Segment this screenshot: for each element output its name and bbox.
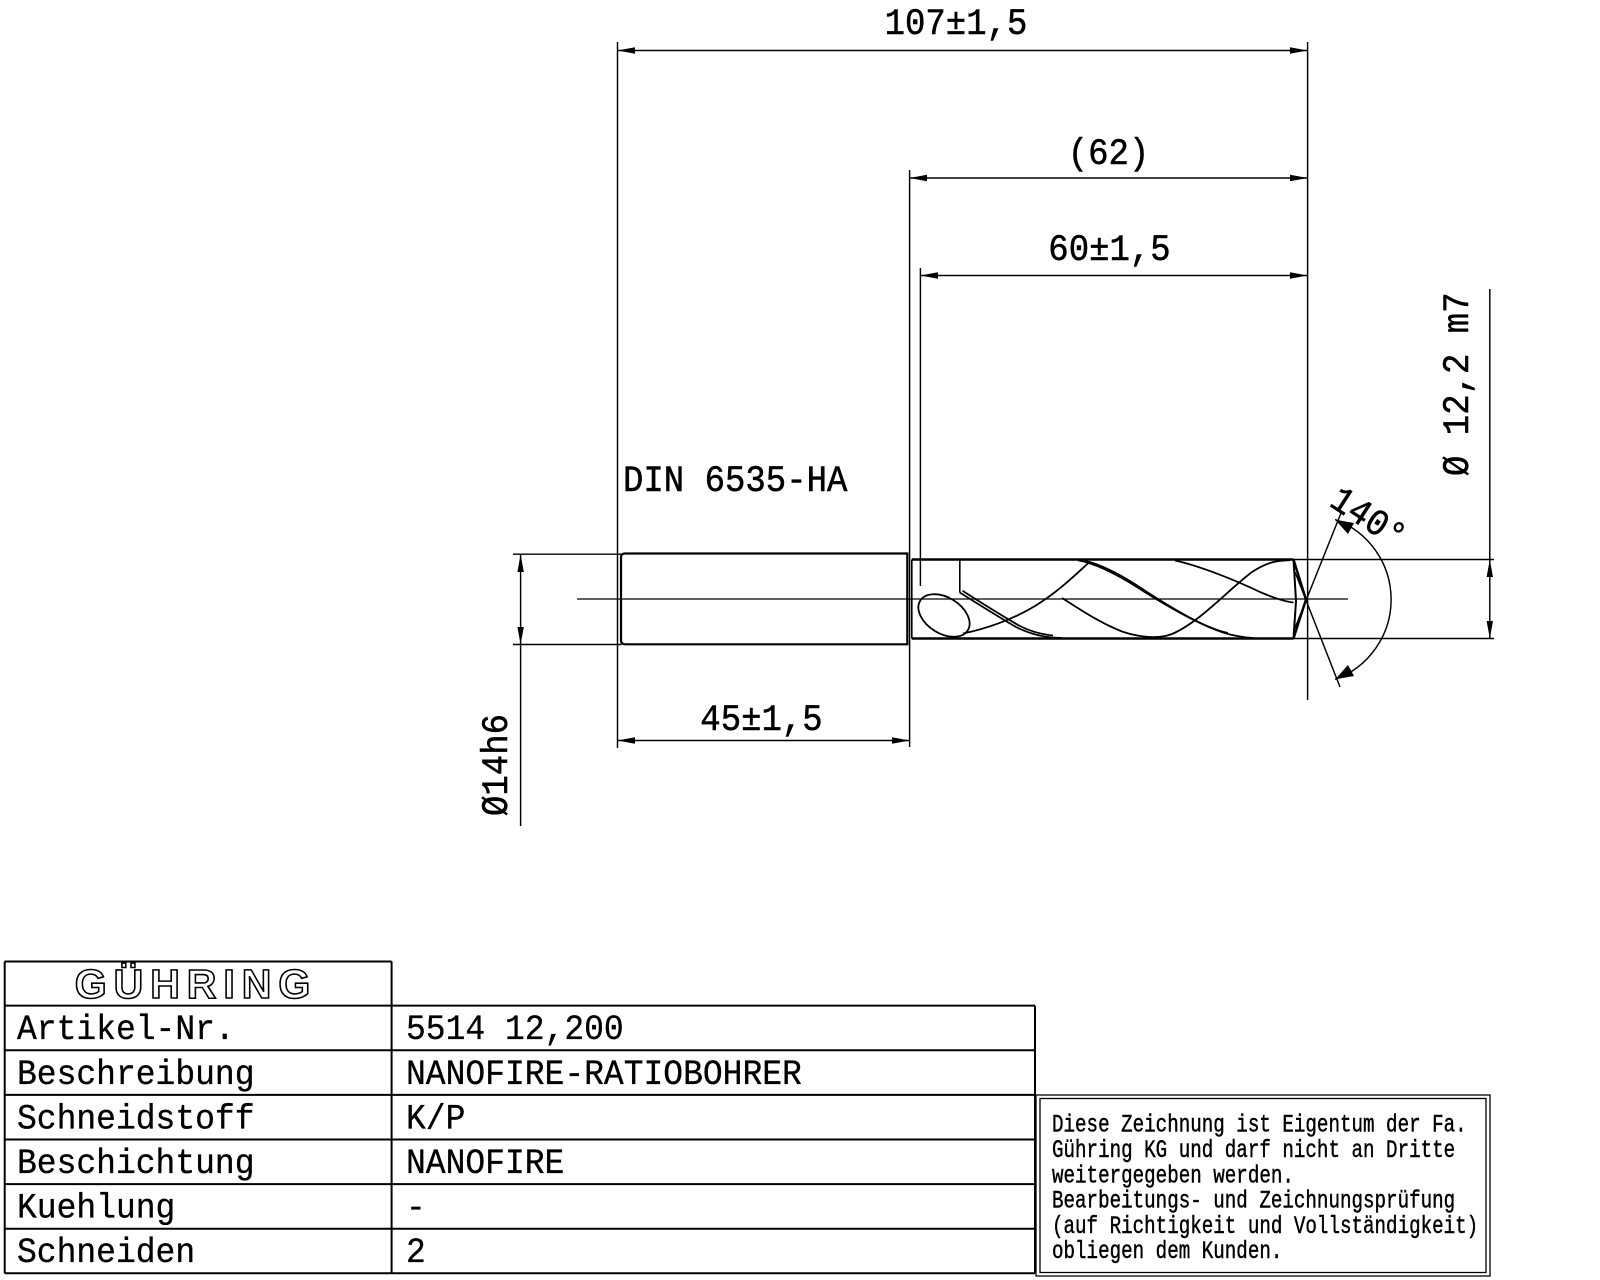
svg-text:Kuehlung: Kuehlung <box>17 1190 175 1229</box>
svg-text:Beschreibung: Beschreibung <box>17 1056 255 1095</box>
svg-text:obliegen dem Kunden.: obliegen dem Kunden. <box>1052 1238 1282 1266</box>
svg-text:107±1,5: 107±1,5 <box>885 3 1028 46</box>
svg-text:Schneidstoff: Schneidstoff <box>17 1101 255 1140</box>
svg-text:Artikel-Nr.: Artikel-Nr. <box>17 1011 235 1050</box>
svg-text:NANOFIRE: NANOFIRE <box>406 1145 564 1184</box>
svg-text:Bearbeitungs- und Zeichnungspr: Bearbeitungs- und Zeichnungsprüfung <box>1052 1188 1455 1216</box>
svg-text:Beschichtung: Beschichtung <box>17 1145 255 1184</box>
svg-text:Gühring KG und darf nicht an D: Gühring KG und darf nicht an Dritte <box>1052 1137 1455 1165</box>
svg-text:Ø 12,2 m7: Ø 12,2 m7 <box>1437 292 1480 476</box>
svg-text:DIN 6535-HA: DIN 6535-HA <box>623 460 848 503</box>
svg-text:5514 12,200: 5514 12,200 <box>406 1011 624 1050</box>
svg-text:2: 2 <box>406 1234 426 1273</box>
svg-text:Schneiden: Schneiden <box>17 1234 195 1273</box>
svg-text:Diese Zeichnung ist Eigentum d: Diese Zeichnung ist Eigentum der Fa. <box>1052 1112 1467 1140</box>
svg-text:(62): (62) <box>1068 133 1150 176</box>
svg-text:60±1,5: 60±1,5 <box>1048 229 1170 272</box>
svg-text:Ø14h6: Ø14h6 <box>476 714 519 816</box>
svg-text:GÜHRING: GÜHRING <box>75 961 318 1007</box>
svg-text:-: - <box>406 1190 426 1229</box>
svg-text:(auf Richtigkeit und Vollständ: (auf Richtigkeit und Vollständigkeit) <box>1052 1213 1478 1241</box>
svg-text:K/P: K/P <box>406 1101 465 1140</box>
svg-text:weitergegeben werden.: weitergegeben werden. <box>1052 1162 1294 1190</box>
svg-text:NANOFIRE-RATIOBOHRER: NANOFIRE-RATIOBOHRER <box>406 1056 802 1095</box>
svg-text:45±1,5: 45±1,5 <box>700 699 822 742</box>
